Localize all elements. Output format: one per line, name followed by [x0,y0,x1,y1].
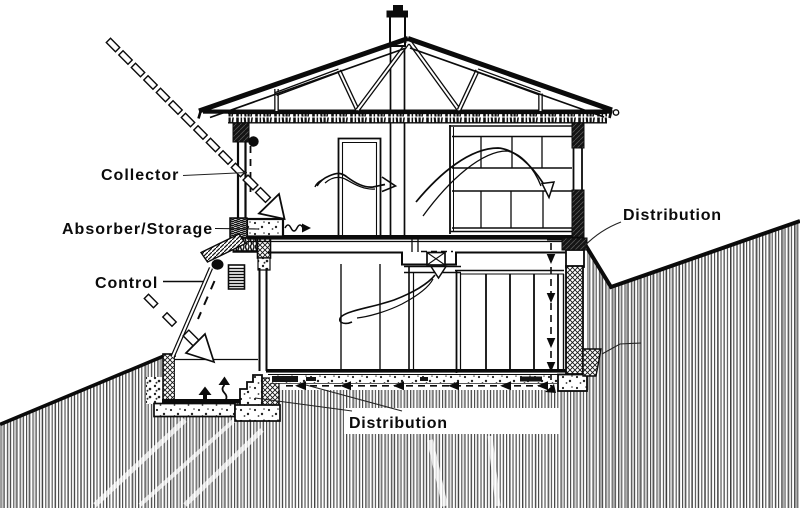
svg-text:Distribution: Distribution [349,415,448,432]
svg-text:Absorber/Storage: Absorber/Storage [62,221,213,238]
svg-text:Distribution: Distribution [623,207,722,224]
svg-text:Collector: Collector [101,167,179,184]
svg-text:Control: Control [95,275,158,292]
